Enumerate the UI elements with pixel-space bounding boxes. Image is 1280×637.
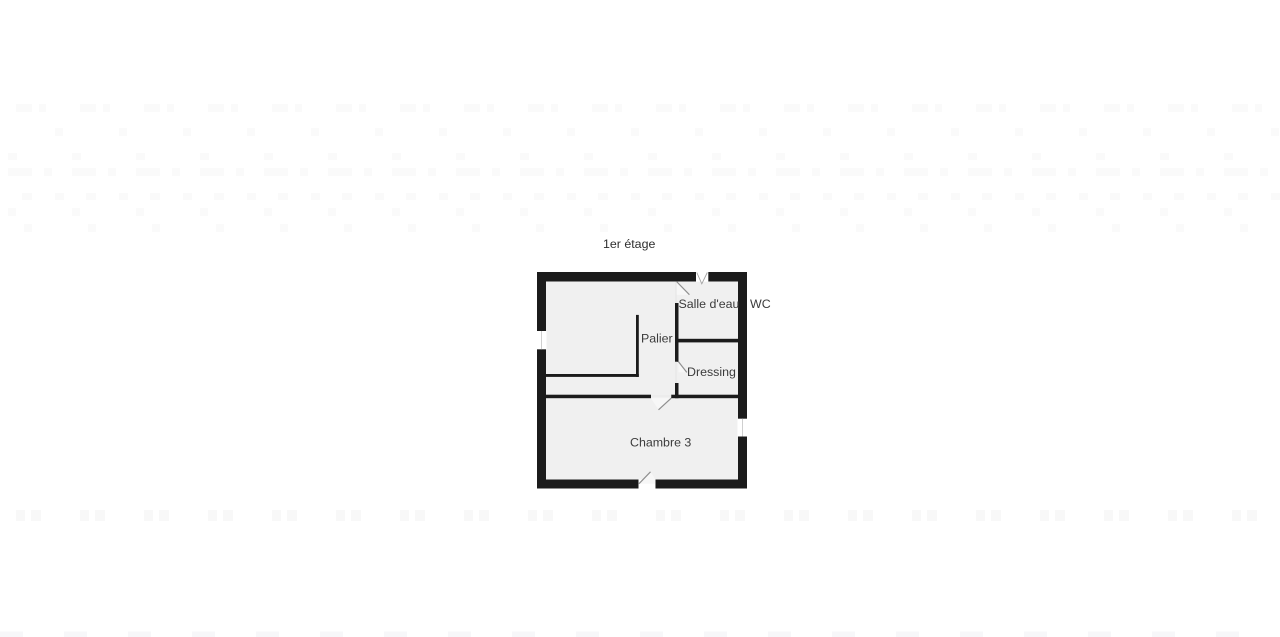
svg-text:Salle d'eau: Salle d'eau: [679, 297, 740, 311]
svg-text:Chambre 3: Chambre 3: [630, 436, 691, 450]
svg-text:WC: WC: [750, 297, 771, 311]
svg-text:Palier: Palier: [641, 332, 673, 346]
svg-text:1er étage: 1er étage: [603, 237, 655, 251]
svg-text:Dressing: Dressing: [687, 365, 736, 379]
